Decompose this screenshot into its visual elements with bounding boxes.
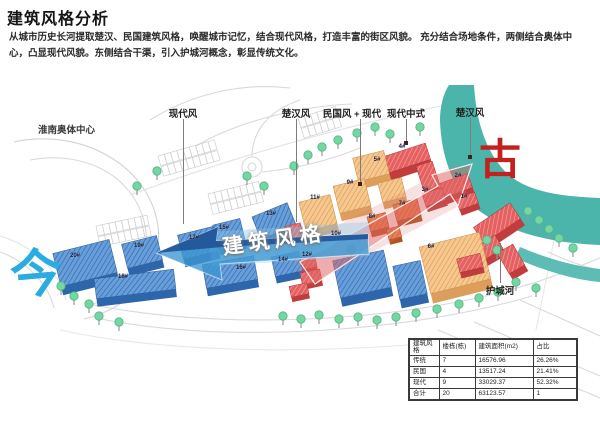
building-number-label: 7#: [399, 201, 406, 207]
building-number-label: 20#: [70, 253, 80, 259]
style-label-chuhan-left: 楚汉风: [282, 106, 311, 120]
building-number-label: 6#: [428, 244, 435, 250]
tree-icon: [475, 294, 483, 307]
table-cell: 26.26%: [533, 356, 577, 367]
style-label-minguo-modern: 民国风 + 现代: [323, 106, 381, 120]
building-number-label: 17#: [189, 235, 199, 241]
table-cell: 7: [439, 356, 475, 367]
table-cell: 63123.57: [475, 389, 533, 401]
stadium-area-label: 淮南奥体中心: [38, 122, 95, 136]
table-row: 传统716576.9626.26%: [409, 356, 577, 367]
building-number-label: 4#: [399, 144, 406, 150]
building-number-label: 13#: [266, 211, 276, 217]
table-cell: 传统: [409, 356, 439, 367]
building-number-label: 1#: [461, 194, 468, 200]
tree-icon: [373, 316, 381, 329]
leader-line: [183, 119, 184, 224]
table-row: 合计2063123.571: [409, 389, 577, 401]
column-header: 楼栋(栋): [439, 339, 475, 356]
table-cell: 9: [439, 378, 475, 389]
table-cell: 21.41%: [533, 367, 577, 378]
page-description: 从城市历史长河提取楚汉、民国建筑风格，唤醒城市记忆，结合现代风格，打造丰富的街区…: [9, 30, 585, 62]
column-header: 建筑风格: [409, 339, 439, 356]
tree-icon: [433, 305, 441, 318]
building-number-label: 3#: [422, 187, 429, 193]
tree-icon: [416, 123, 424, 136]
tree-icon: [555, 234, 563, 247]
leader-line-moat: [500, 243, 501, 283]
building-number-label: 16#: [236, 265, 246, 271]
building-number-label: 18#: [118, 274, 128, 280]
table-header-row: 建筑风格楼栋(栋)建筑面积(m2)占比: [409, 339, 577, 356]
table-cell: 1: [533, 389, 577, 401]
tree-icon: [315, 311, 323, 324]
tree-icon: [569, 244, 577, 257]
table-cell: 现代: [409, 378, 439, 389]
tree-icon: [279, 312, 287, 325]
building-number-label: 11#: [310, 195, 320, 201]
style-label-modern-chinese: 现代中式: [387, 106, 425, 120]
building-number-label: 9#: [347, 180, 354, 186]
parking-row: [208, 181, 264, 214]
table-body: 传统716576.9626.26%民国413517.2421.41%现代9330…: [409, 356, 577, 401]
building-number-label: 12#: [302, 252, 312, 258]
table-cell: 民国: [409, 367, 439, 378]
tree-icon: [335, 315, 343, 328]
building-number-label: 5#: [374, 157, 381, 163]
tree-icon: [95, 312, 103, 325]
tree-icon: [354, 313, 362, 326]
tree-icon: [297, 315, 305, 328]
building-number-label: 10#: [331, 231, 341, 237]
leader-line: [406, 119, 407, 143]
building-number-label: 14#: [278, 257, 288, 263]
table-row: 民国413517.2421.41%: [409, 367, 577, 378]
tree-icon: [304, 151, 312, 164]
leader-line: [470, 118, 471, 157]
tree-icon: [318, 143, 326, 156]
building-number-label: 15#: [219, 225, 229, 231]
leader-dot: [468, 155, 472, 159]
parking-row: [158, 140, 220, 176]
tree-icon: [70, 292, 78, 305]
column-header: 建筑面积(m2): [475, 339, 533, 356]
building-block: [122, 236, 165, 277]
tree-icon: [532, 284, 540, 297]
table-cell: 合计: [409, 389, 439, 401]
era-now-character: 今: [7, 230, 65, 309]
table-row: 现代933029.3752.32%: [409, 378, 577, 389]
tree-icon: [153, 167, 161, 180]
tree-icon: [243, 172, 251, 185]
style-label-modern: 现代风: [169, 106, 198, 120]
table-cell: 52.32%: [533, 378, 577, 389]
table-cell: 13517.24: [475, 367, 533, 378]
tree-icon: [455, 300, 463, 313]
style-label-chuhan-right: 楚汉风: [456, 105, 485, 119]
moat-label: 护城河: [486, 283, 515, 297]
table-cell: 4: [439, 367, 475, 378]
table-head: 建筑风格楼栋(栋)建筑面积(m2)占比: [409, 339, 577, 356]
building-block: [393, 260, 429, 308]
tree-icon: [371, 123, 379, 136]
building-number-label: 8#: [369, 214, 376, 220]
tree-icon: [386, 130, 394, 143]
leader-line: [296, 119, 297, 222]
column-header: 占比: [533, 339, 577, 356]
leader-dot: [358, 182, 362, 186]
table-cell: 33029.37: [475, 378, 533, 389]
tree-icon: [334, 136, 342, 149]
table-cell: 20: [439, 389, 475, 401]
page-title: 建筑风格分析: [7, 5, 109, 29]
building-number-label: 2#: [455, 173, 462, 179]
tree-icon: [115, 318, 123, 331]
table-cell: 16576.96: [475, 356, 533, 367]
tree-icon: [85, 300, 93, 313]
leader-line: [360, 119, 361, 184]
building-number-label: 19#: [134, 243, 144, 249]
style-stats-table: 建筑风格楼栋(栋)建筑面积(m2)占比 传统716576.9626.26%民国4…: [408, 338, 578, 401]
era-ancient-character: 古: [479, 126, 521, 187]
